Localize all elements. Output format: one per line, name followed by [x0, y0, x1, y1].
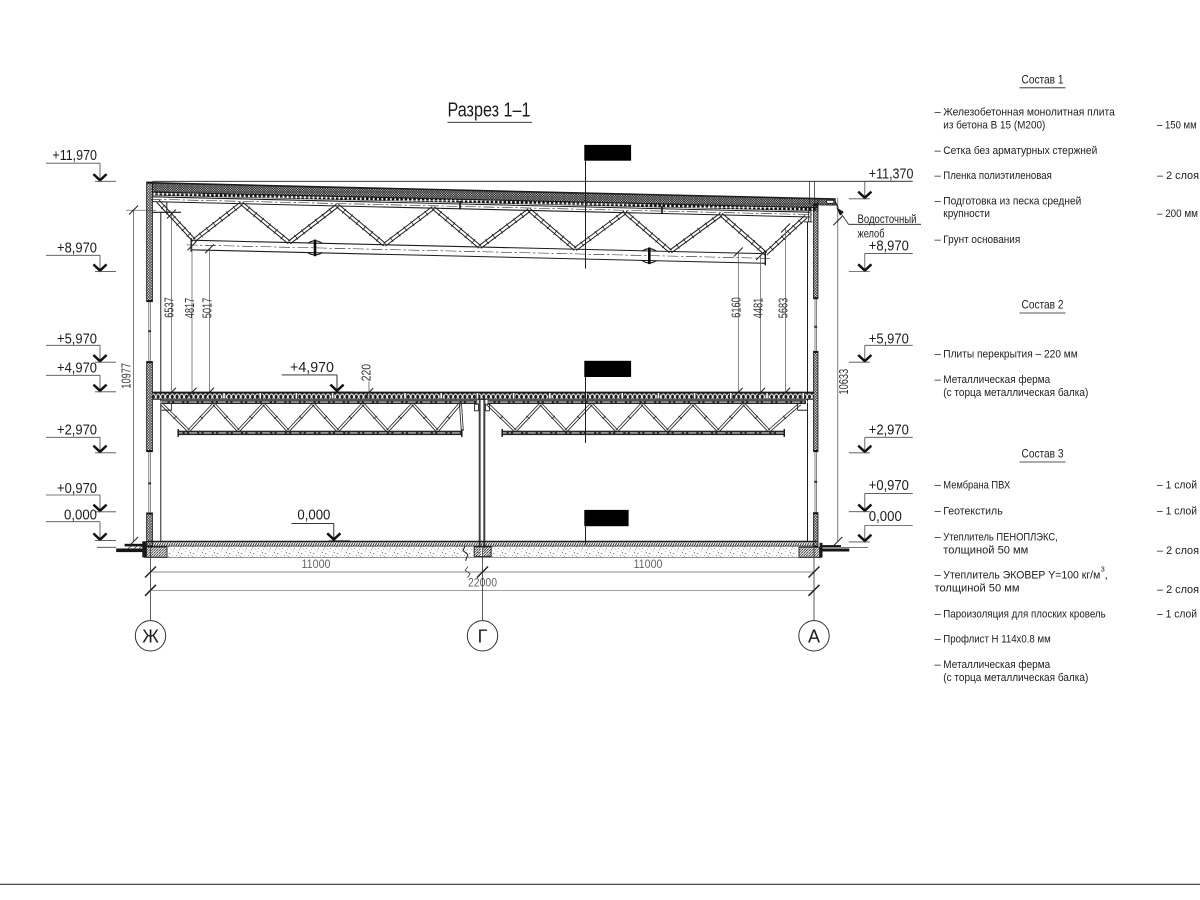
- svg-text:Железобетонная монолитная пли: Железобетонная монолитная плита: [943, 107, 1115, 119]
- svg-text:–: –: [935, 608, 942, 620]
- svg-text:0,000: 0,000: [297, 507, 330, 524]
- svg-text:крупности: крупности: [943, 208, 990, 220]
- svg-text:–: –: [935, 506, 942, 518]
- svg-text:– 1 слой: – 1 слой: [1157, 608, 1197, 620]
- svg-text:6537: 6537: [162, 297, 177, 318]
- svg-text:11000: 11000: [302, 557, 331, 571]
- svg-text:Пароизоляция для плоских крове: Пароизоляция для плоских кровель: [943, 608, 1105, 620]
- svg-text:5017: 5017: [200, 298, 215, 319]
- svg-text:Мембрана ПВХ: Мембрана ПВХ: [943, 480, 1010, 492]
- svg-text:Пленка полиэтиленовая: Пленка полиэтиленовая: [943, 170, 1052, 182]
- svg-text:11000: 11000: [634, 557, 663, 571]
- svg-text:10977: 10977: [118, 363, 133, 389]
- svg-text:(с торца металлическая балка): (с торца металлическая балка): [943, 387, 1088, 399]
- svg-text:–: –: [935, 570, 942, 582]
- svg-text:Состав 2: Состав 2: [1022, 298, 1064, 312]
- svg-text:+0,970: +0,970: [869, 477, 909, 494]
- svg-text:Металлическая ферма: Металлическая ферма: [943, 374, 1051, 386]
- svg-text:желоб: желоб: [858, 228, 885, 240]
- svg-text:–: –: [935, 170, 942, 182]
- svg-text:–: –: [935, 659, 942, 671]
- svg-text:–: –: [935, 374, 942, 386]
- svg-text:Состав 1: Состав 1: [1022, 72, 1064, 86]
- svg-text:Ж: Ж: [142, 626, 159, 646]
- svg-text:– 200 мм: – 200 мм: [1157, 208, 1198, 220]
- svg-text:+4,970: +4,970: [290, 359, 334, 376]
- svg-text:толщиной 50 мм: толщиной 50 мм: [935, 583, 1020, 595]
- svg-text:– 1 слой: – 1 слой: [1157, 506, 1197, 518]
- svg-text:5683: 5683: [776, 298, 791, 319]
- svg-text:10633: 10633: [836, 369, 851, 395]
- svg-text:+4,970: +4,970: [57, 360, 97, 377]
- svg-text:–: –: [935, 634, 942, 646]
- svg-text:–: –: [935, 195, 942, 207]
- svg-text:+0,970: +0,970: [57, 480, 97, 497]
- svg-text:Металлическая ферма: Металлическая ферма: [943, 659, 1051, 671]
- svg-text:+8,970: +8,970: [57, 240, 97, 257]
- svg-text:0,000: 0,000: [869, 508, 902, 525]
- svg-text:Геотекстиль: Геотекстиль: [943, 506, 1002, 518]
- svg-text:–: –: [935, 107, 942, 119]
- svg-text:+2,970: +2,970: [869, 422, 909, 439]
- svg-text:из бетона В 15 (М200): из бетона В 15 (М200): [943, 120, 1045, 132]
- svg-text:+11,370: +11,370: [869, 166, 914, 183]
- svg-text:4481: 4481: [751, 298, 766, 319]
- svg-text:+2,970: +2,970: [57, 422, 97, 439]
- svg-text:Утеплитель ПЕНОПЛЭКС,: Утеплитель ПЕНОПЛЭКС,: [943, 532, 1057, 544]
- svg-text:Грунт основания: Грунт основания: [943, 234, 1020, 246]
- svg-text:Профлист Н 114х0.8 мм: Профлист Н 114х0.8 мм: [943, 634, 1050, 646]
- svg-text:,: ,: [1105, 570, 1108, 582]
- svg-text:А: А: [808, 626, 820, 646]
- svg-text:(с торца металлическая балка): (с торца металлическая балка): [943, 672, 1088, 684]
- svg-text:Состав 3: Состав 3: [1022, 447, 1064, 461]
- svg-text:+11,970: +11,970: [52, 147, 97, 164]
- svg-text:–: –: [935, 532, 942, 544]
- svg-text:Утеплитель ЭКОВЕР Y=100 кг/м: Утеплитель ЭКОВЕР Y=100 кг/м: [943, 570, 1100, 582]
- svg-text:–: –: [935, 348, 942, 360]
- svg-text:–: –: [935, 145, 942, 157]
- svg-text:Подготовка из песка средней: Подготовка из песка средней: [943, 195, 1081, 207]
- svg-text:Г: Г: [478, 626, 488, 646]
- svg-text:– 2 слоя: – 2 слоя: [1157, 584, 1199, 596]
- svg-text:4817: 4817: [182, 298, 197, 319]
- svg-text:–: –: [935, 234, 942, 246]
- svg-text:6160: 6160: [728, 297, 743, 318]
- svg-text:– 2 слоя: – 2 слоя: [1157, 545, 1199, 557]
- svg-text:– 1 слой: – 1 слой: [1157, 480, 1197, 492]
- svg-text:– 150 мм: – 150 мм: [1157, 120, 1197, 132]
- svg-text:Плиты перекрытия – 220 мм: Плиты перекрытия – 220 мм: [943, 348, 1078, 360]
- svg-text:толщиной 50 мм: толщиной 50 мм: [943, 545, 1028, 557]
- svg-text:– 2 слоя: – 2 слоя: [1157, 170, 1199, 182]
- svg-text:–: –: [935, 480, 942, 492]
- svg-text:0,000: 0,000: [64, 507, 97, 524]
- svg-text:Сетка без арматурных стержней: Сетка без арматурных стержней: [943, 145, 1097, 157]
- svg-text:220: 220: [359, 364, 374, 381]
- svg-text:Разрез 1–1: Разрез 1–1: [448, 98, 531, 121]
